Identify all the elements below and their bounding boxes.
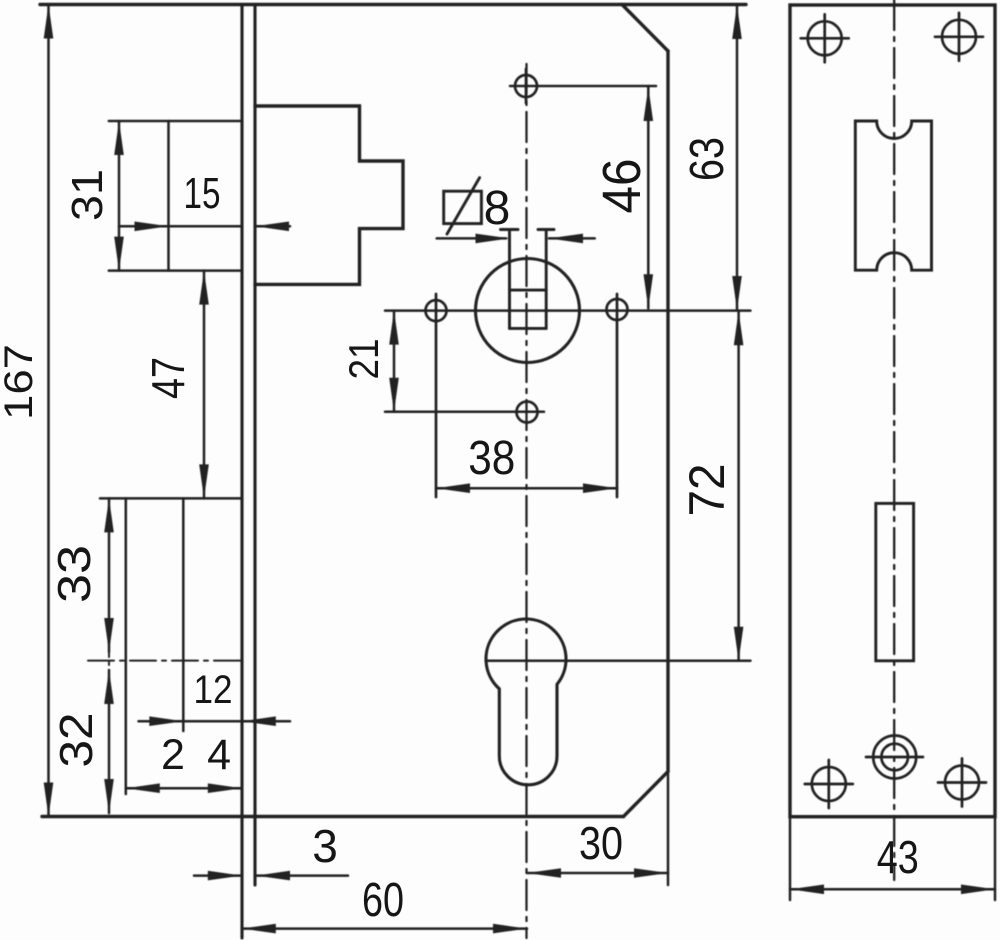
svg-text:21: 21	[340, 339, 387, 380]
svg-text:72: 72	[679, 464, 735, 517]
svg-text:167: 167	[0, 344, 41, 420]
svg-text:46: 46	[592, 159, 652, 214]
svg-text:24: 24	[161, 731, 231, 779]
svg-text:38: 38	[468, 432, 515, 485]
svg-text:60: 60	[362, 874, 404, 927]
svg-text:12: 12	[194, 668, 233, 712]
svg-text:30: 30	[579, 817, 623, 869]
svg-text:47: 47	[142, 357, 194, 399]
svg-text:15: 15	[184, 169, 221, 218]
svg-text:63: 63	[681, 137, 734, 181]
svg-text:3: 3	[312, 820, 338, 872]
svg-text:32: 32	[50, 713, 102, 768]
svg-text:33: 33	[48, 545, 100, 603]
svg-text:43: 43	[877, 831, 919, 883]
svg-text:8: 8	[484, 182, 511, 235]
svg-text:31: 31	[63, 169, 112, 221]
